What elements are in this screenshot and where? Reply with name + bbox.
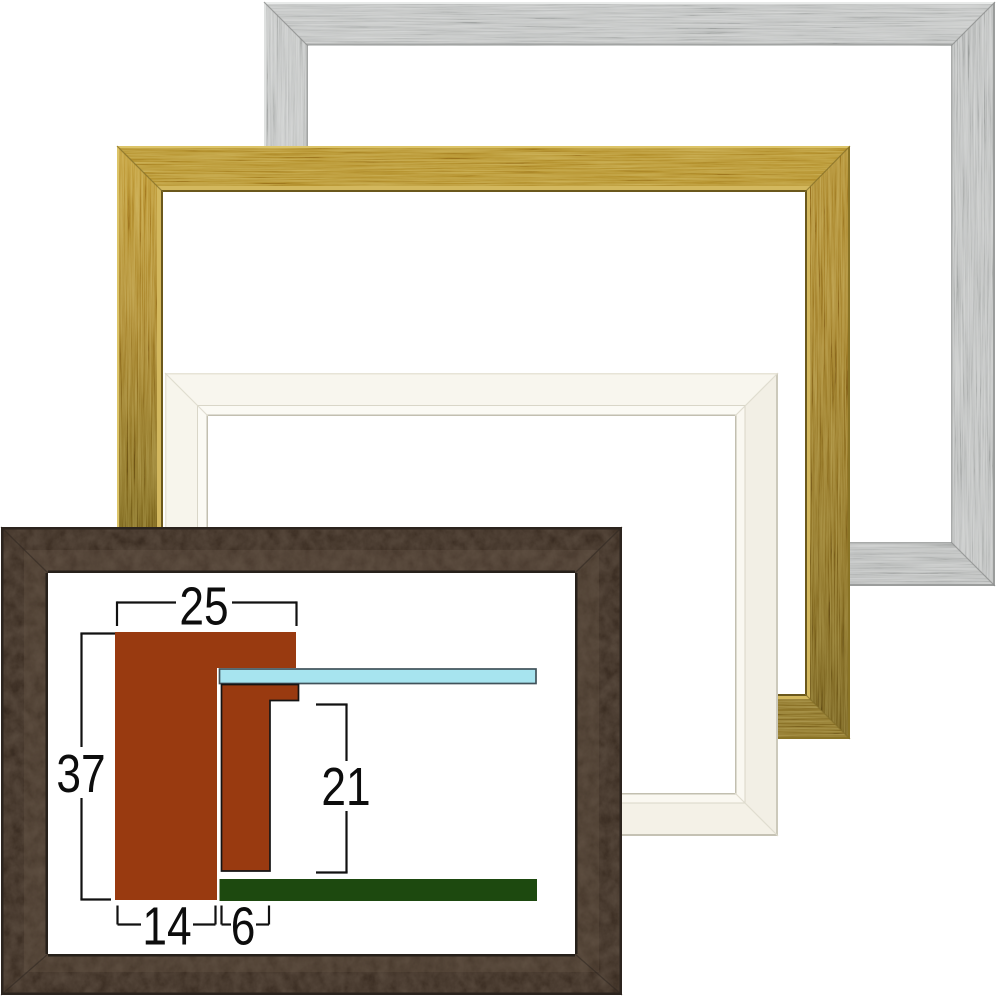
svg-text:14: 14 (142, 896, 191, 956)
svg-text:21: 21 (321, 757, 370, 817)
svg-text:37: 37 (56, 744, 105, 804)
svg-text:6: 6 (231, 896, 256, 956)
svg-text:25: 25 (179, 576, 228, 636)
